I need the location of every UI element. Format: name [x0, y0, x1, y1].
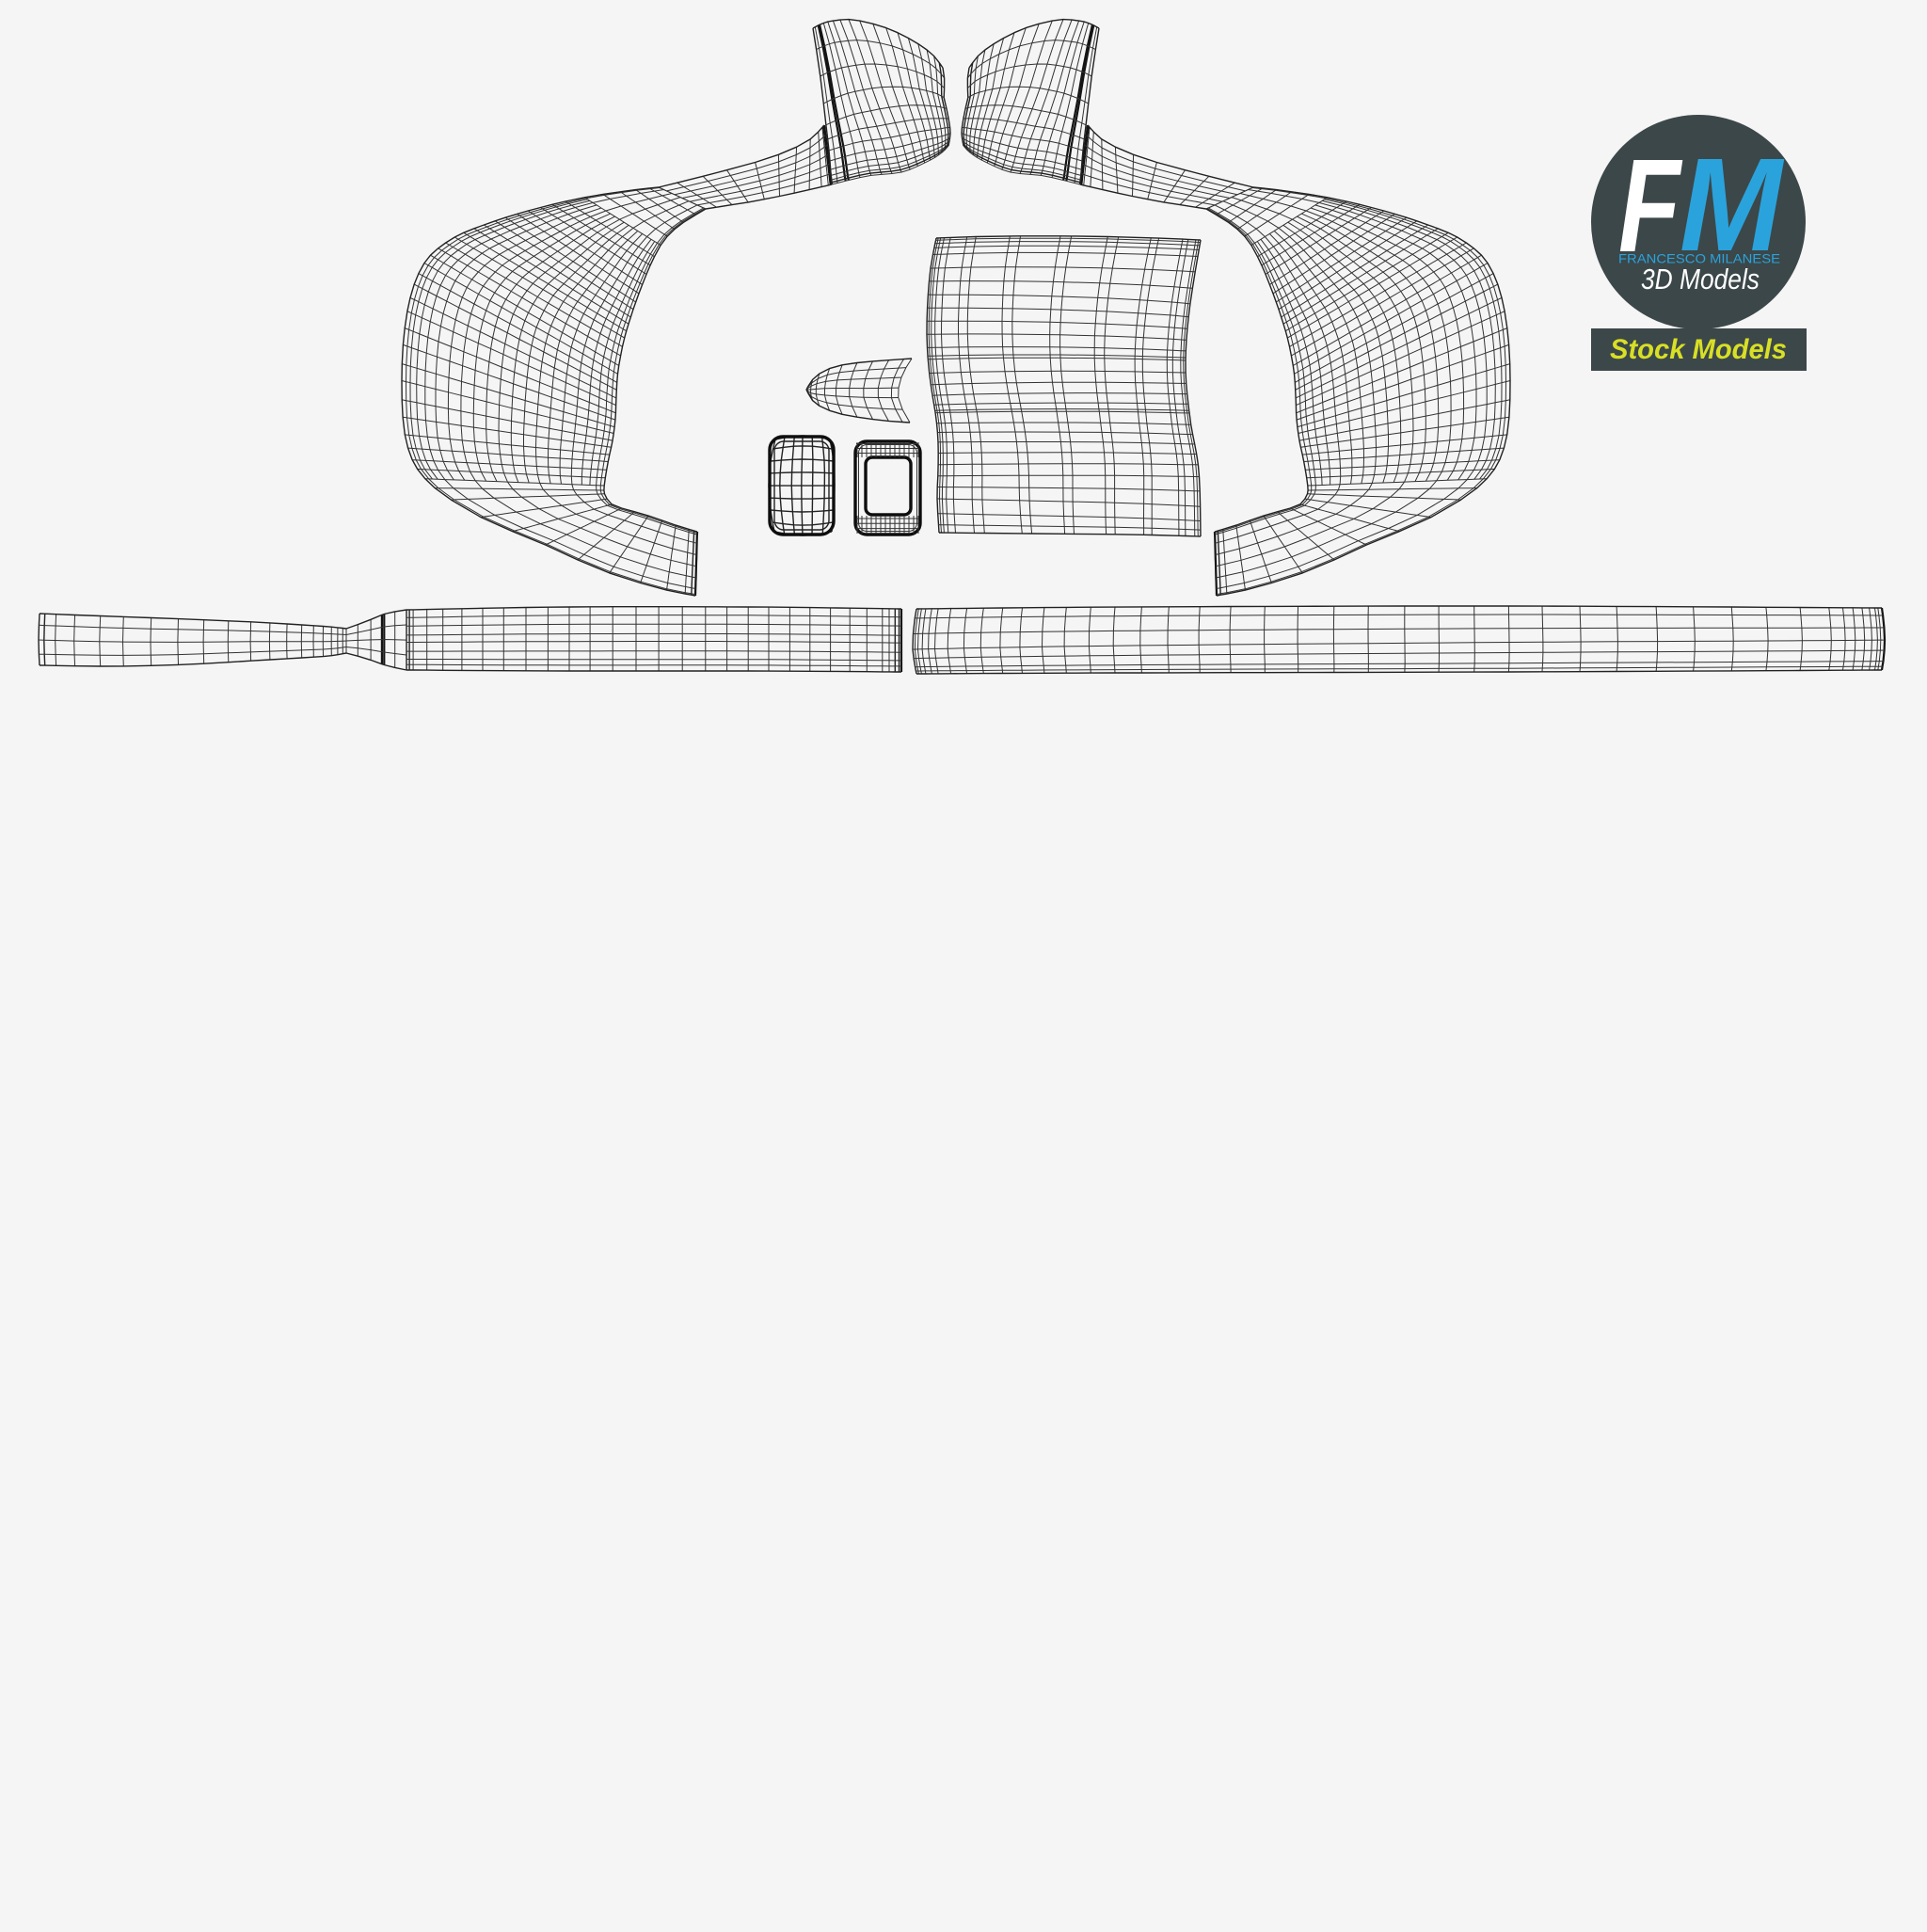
svg-text:3D Models: 3D Models: [1641, 263, 1760, 295]
svg-text:Stock Models: Stock Models: [1610, 334, 1787, 365]
